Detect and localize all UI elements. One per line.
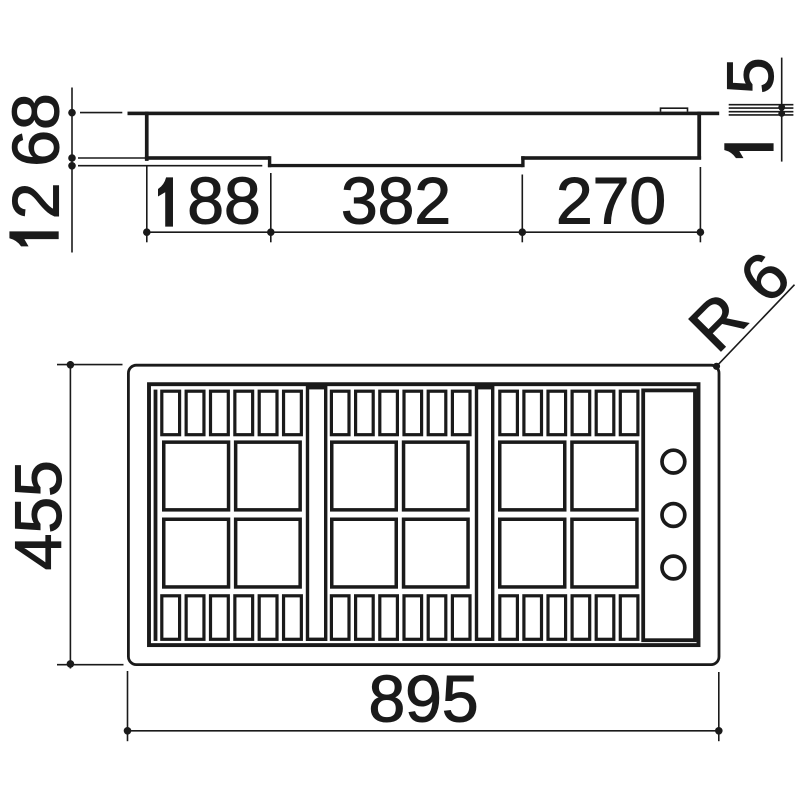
svg-text:88: 88 (187, 164, 260, 238)
svg-text:382: 382 (341, 164, 451, 238)
svg-text:270: 270 (556, 164, 666, 238)
svg-text:455: 455 (1, 460, 75, 570)
svg-text:2: 2 (0, 183, 72, 220)
svg-text:5: 5 (713, 57, 787, 94)
svg-text:895: 895 (368, 662, 478, 736)
svg-text:68: 68 (0, 93, 72, 166)
